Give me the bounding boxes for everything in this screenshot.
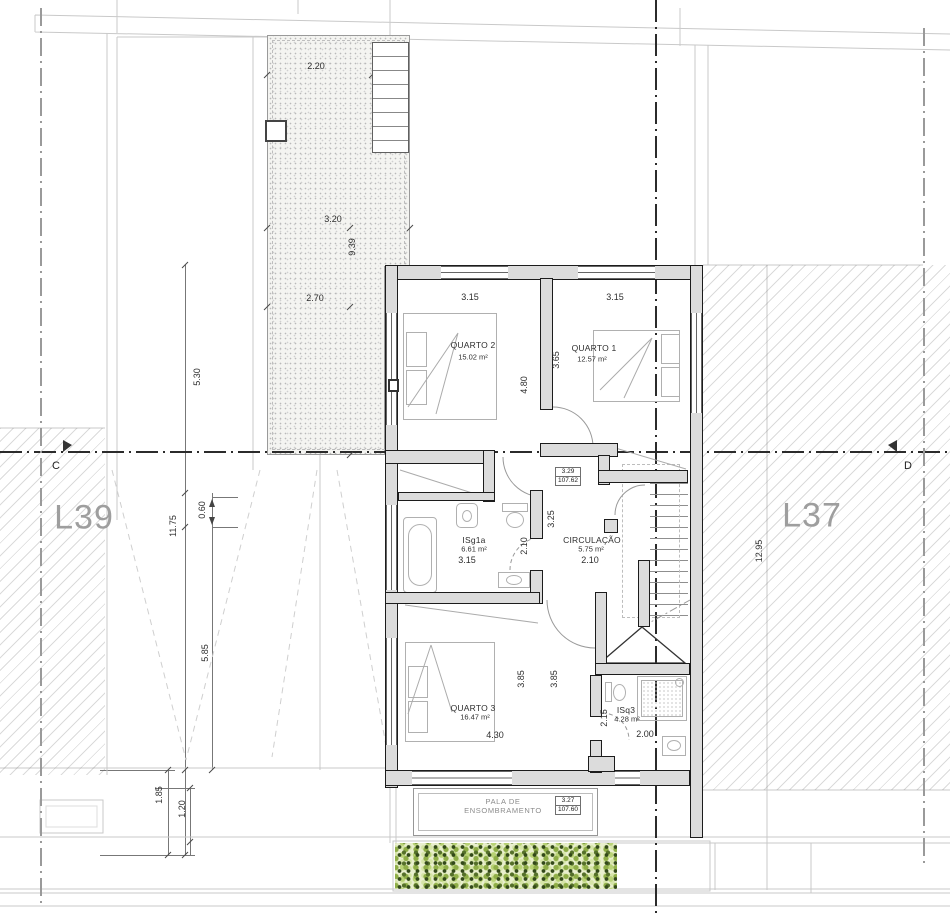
dim-patio-top: 2.20	[307, 61, 325, 71]
room-area-quarto2: 15.02 m²	[458, 353, 488, 362]
dim-circulacao-depth: 3.25	[546, 510, 556, 528]
dim-quarto3-width: 4.30	[486, 730, 504, 740]
dim-circulacao-width: 2.10	[581, 555, 599, 565]
dim-isg1a-depth: 2.10	[519, 537, 529, 555]
level-marker-floor: 3.29 107.62	[555, 467, 581, 486]
dim-left-upper: 5.30	[192, 368, 202, 386]
level-floor-relative: 3.29	[556, 468, 580, 476]
stair-newel-post	[604, 519, 618, 533]
dim-patio-mid: 3.20	[324, 214, 342, 224]
dim-quarto3-depth-right: 3.85	[549, 670, 559, 688]
level-marker-canopy: 3.27 107.60	[555, 796, 581, 815]
dim-quarto2-depth: 4.80	[519, 376, 529, 394]
exterior-stair-symbol	[372, 42, 409, 153]
canopy-label-line1: PALA DE	[464, 797, 542, 806]
dim-quarto2-width: 3.15	[461, 292, 479, 302]
patio-box-symbol	[265, 120, 287, 142]
wall-q2-q1	[540, 278, 553, 410]
room-area-isq3: 4.28 m²	[614, 715, 639, 724]
dim-quarto3-depth-left: 3.85	[516, 670, 526, 688]
dim-left-total: 11.75	[168, 515, 178, 537]
floor-plan-sheet: L39 L37 C D 2.20 3.20 9.39 2.70 5.30 11.…	[0, 0, 950, 917]
room-label-isg1a: ISg1a	[462, 535, 485, 545]
window-quarto2-left	[386, 313, 397, 425]
room-label-quarto1: QUARTO 1	[572, 343, 617, 353]
canopy-label-line2: ENSOMBRAMENTO	[464, 806, 542, 815]
lot-label-l37: L37	[782, 497, 842, 536]
window-isq3-bottom	[615, 771, 640, 785]
dim-isq3-depth: 2.15	[599, 709, 609, 727]
room-area-isg1a: 6.61 m²	[461, 545, 486, 554]
dim-left-offset: 0.60	[197, 501, 207, 519]
wall-circulation-stair	[638, 560, 650, 627]
room-label-quarto3: QUARTO 3	[451, 703, 496, 713]
dim-isq3-width: 2.00	[636, 729, 654, 739]
level-floor-absolute: 107.62	[556, 476, 580, 485]
offset-arrows	[209, 499, 215, 525]
wall-isq3-top	[595, 663, 690, 675]
level-canopy-absolute: 107.60	[556, 805, 580, 814]
wall-q2-bottom	[385, 450, 495, 464]
dim-quarto1-width: 3.15	[606, 292, 624, 302]
dim-quarto1-depth: 3.65	[551, 351, 561, 369]
wall-closet-bottom	[398, 492, 495, 501]
window-quarto1-right	[691, 313, 702, 413]
dim-patio-height: 9.39	[347, 238, 357, 256]
wall-box-symbol	[388, 379, 399, 392]
room-area-quarto1: 12.57 m²	[577, 355, 607, 364]
section-marker-d: D	[904, 460, 912, 472]
wall-landing-bottom	[598, 470, 688, 483]
wall-isg1a-bottom	[385, 592, 540, 604]
dim-left-lower: 5.85	[200, 644, 210, 662]
section-marker-c: C	[52, 460, 60, 472]
dimension-ticks	[165, 72, 413, 858]
hedge-vegetation	[395, 843, 617, 889]
dim-patio-low: 2.70	[306, 293, 324, 303]
level-canopy-relative: 3.27	[556, 797, 580, 805]
dim-right-total: 12.95	[754, 540, 764, 563]
room-area-quarto3: 16.47 m²	[460, 713, 490, 722]
room-label-circulacao: CIRCULAÇÃO	[563, 535, 621, 545]
room-label-isq3: ISq3	[617, 705, 635, 715]
window-quarto3-bottom	[412, 771, 512, 785]
window-quarto3-left	[386, 638, 397, 745]
window-isg1a-left	[386, 505, 397, 590]
room-label-quarto2: QUARTO 2	[451, 340, 496, 350]
window-quarto1-top	[578, 266, 655, 279]
canopy-label: PALA DE ENSOMBRAMENTO	[464, 797, 542, 815]
room-area-circulacao: 5.75 m²	[578, 545, 603, 554]
stair-void-triangle	[600, 627, 685, 663]
dim-left-margin: 1.85	[154, 786, 164, 804]
dim-left-setback: 1.20	[177, 800, 187, 818]
lot-label-l39: L39	[54, 499, 114, 538]
dim-isg1a-width: 3.15	[458, 555, 476, 565]
wall-bottom-stub	[588, 756, 615, 772]
window-quarto2-top	[441, 266, 508, 279]
wall-isg1a-right	[530, 490, 543, 539]
